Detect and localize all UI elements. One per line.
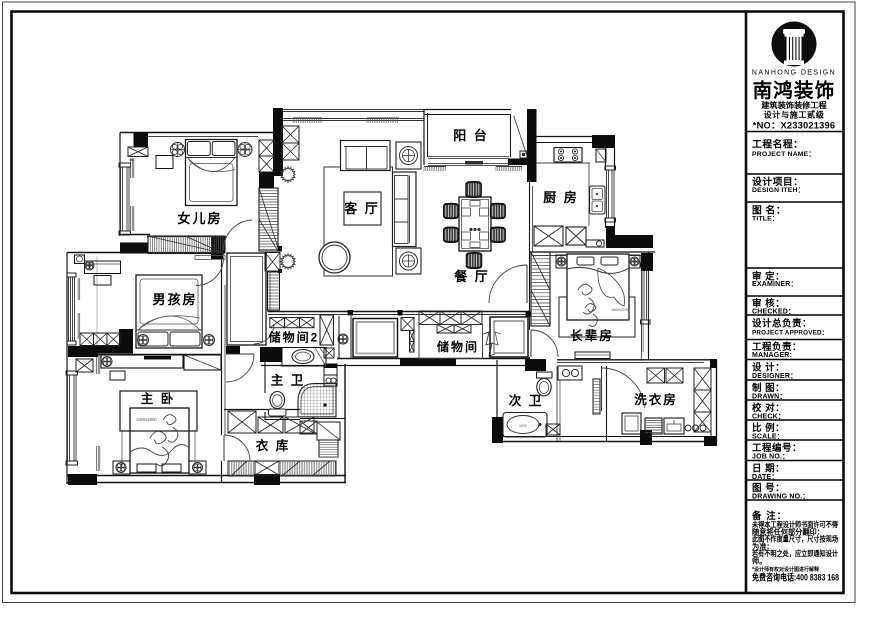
svg-text:PROJECT APPROVED：: PROJECT APPROVED： bbox=[752, 330, 828, 337]
svg-text:长辈房: 长辈房 bbox=[570, 328, 614, 343]
svg-text:师。: 师。 bbox=[752, 557, 766, 566]
svg-text:DESIGN ITEH：: DESIGN ITEH： bbox=[752, 187, 805, 194]
svg-text:主 卫: 主 卫 bbox=[271, 373, 305, 388]
svg-text:南鸿装饰: 南鸿装饰 bbox=[753, 79, 836, 102]
svg-text:DRAWN：: DRAWN： bbox=[752, 394, 787, 401]
svg-text:MOM: MOM bbox=[519, 424, 527, 428]
svg-text:TITLE：: TITLE： bbox=[752, 216, 779, 223]
svg-text:SCALE：: SCALE： bbox=[752, 434, 784, 441]
svg-text:图 号：: 图 号： bbox=[752, 483, 785, 494]
svg-text:比 例：: 比 例： bbox=[752, 422, 785, 434]
svg-text:日 期：: 日 期： bbox=[752, 463, 785, 475]
svg-text:储物间2: 储物间2 bbox=[269, 330, 320, 345]
svg-text:厨 房: 厨 房 bbox=[543, 190, 579, 205]
svg-text:NANHONG DESIGN: NANHONG DESIGN bbox=[752, 70, 836, 77]
svg-text:*NO：X233021396: *NO：X233021396 bbox=[753, 121, 835, 131]
svg-text:DESIGNER：: DESIGNER： bbox=[752, 373, 797, 380]
svg-text:PROJECT NAME：: PROJECT NAME： bbox=[752, 151, 815, 158]
svg-text:校 对：: 校 对： bbox=[752, 402, 785, 414]
svg-text:工程编号：: 工程编号： bbox=[752, 442, 802, 454]
svg-text:次 卫: 次 卫 bbox=[509, 393, 543, 408]
svg-text:CHECKED：: CHECKED： bbox=[752, 309, 795, 316]
svg-text:设 计：: 设 计： bbox=[752, 362, 785, 374]
svg-text:男孩房: 男孩房 bbox=[152, 292, 197, 307]
svg-text:阳 台: 阳 台 bbox=[453, 128, 489, 143]
svg-text:餐 厅: 餐 厅 bbox=[453, 269, 490, 284]
svg-text:1800x2000: 1800x2000 bbox=[611, 308, 630, 312]
svg-text:DRAWING NO.：: DRAWING NO.： bbox=[752, 494, 810, 501]
svg-text:储物间: 储物间 bbox=[437, 339, 479, 354]
svg-text:衣 库: 衣 库 bbox=[256, 438, 290, 453]
svg-text:主 卧: 主 卧 bbox=[141, 391, 175, 406]
svg-text:女儿房: 女儿房 bbox=[177, 211, 222, 226]
svg-text:洗衣房: 洗衣房 bbox=[634, 392, 678, 407]
svg-text:CHECK：: CHECK： bbox=[752, 414, 785, 421]
svg-text:免费咨询电话:400 8383 168: 免费咨询电话:400 8383 168 bbox=[752, 572, 839, 583]
svg-text:DATE：: DATE： bbox=[752, 474, 779, 481]
svg-text:MANAGER:: MANAGER: bbox=[752, 352, 792, 359]
svg-text:建筑装饰装修工程: 建筑装饰装修工程 bbox=[761, 100, 827, 110]
svg-text:客 厅: 客 厅 bbox=[344, 201, 380, 216]
svg-text:设计与施工贰级: 设计与施工贰级 bbox=[764, 110, 825, 120]
svg-text:制 图：: 制 图： bbox=[752, 382, 785, 394]
svg-text:EXAMINER：: EXAMINER： bbox=[752, 281, 798, 288]
svg-text:设计总负责：: 设计总负责： bbox=[752, 318, 812, 330]
svg-text:1800x2000: 1800x2000 bbox=[136, 417, 157, 422]
svg-text:JOB NO.：: JOB NO.： bbox=[752, 454, 789, 461]
svg-text:工程名程：: 工程名程： bbox=[752, 138, 803, 151]
